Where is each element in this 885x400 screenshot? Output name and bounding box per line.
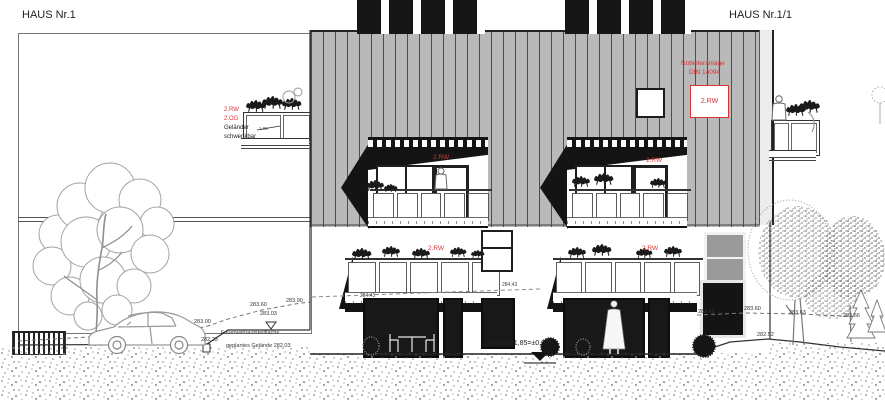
elev-283-60-r: 283.60 bbox=[744, 307, 761, 313]
label-schwenkbar: schwenkbar bbox=[224, 134, 256, 140]
label-din-14094: DIN 14094 bbox=[689, 70, 720, 77]
loggia-2og-right bbox=[567, 137, 687, 225]
label-rw-loggia-left: 2.RW bbox=[433, 155, 449, 162]
balcony-right-window-band bbox=[565, 0, 691, 34]
balcony-left-window-band bbox=[357, 0, 485, 34]
rfb-level-triangle bbox=[531, 352, 549, 361]
stair-window-upper bbox=[481, 230, 513, 272]
elev-283-63: 283.63 bbox=[789, 311, 806, 317]
label-rw-balcony-right: 2.RW bbox=[642, 246, 658, 253]
tree-trunks bbox=[786, 298, 851, 345]
smoke-vent-box: 2.RW bbox=[690, 85, 729, 118]
elev-283-90: 283.90 bbox=[286, 299, 303, 305]
label-notleiteranlage: Notleiteranlage bbox=[681, 61, 725, 68]
elevation-drawing: 1.00 2.RW bbox=[0, 0, 885, 400]
elev-282-23: 282.23 bbox=[201, 338, 218, 344]
person-balcony-right-house bbox=[772, 96, 786, 120]
elev-284-43-b: 284.43 bbox=[502, 283, 517, 288]
eg-door-left-narrow bbox=[443, 298, 463, 358]
house-nr11-balcony-slab-line bbox=[769, 160, 816, 161]
roof-window bbox=[636, 88, 665, 118]
elev-283-60: 283.60 bbox=[250, 303, 267, 309]
eg-glass-door-right bbox=[563, 298, 645, 358]
elev-284-43-a: 284.43 bbox=[360, 294, 375, 299]
elev-283-65: 283.65 bbox=[698, 310, 715, 316]
house-nr11-balcony-slab bbox=[769, 150, 816, 158]
label-rw-loggia-right: 2.RW bbox=[646, 158, 662, 165]
label-og-house: 2.OG bbox=[224, 116, 238, 122]
railing-dimension: 1.00 bbox=[259, 126, 268, 131]
eg-door-right-narrow bbox=[648, 298, 670, 358]
right-window-upper bbox=[704, 232, 746, 284]
label-rw-balcony-left: 2.RW bbox=[428, 246, 444, 253]
grade-marker-post bbox=[203, 344, 210, 352]
house-nr1-floor-line-2 bbox=[18, 221, 310, 222]
railing-panel bbox=[791, 123, 817, 153]
elev-283-03: 283.03 bbox=[260, 312, 277, 318]
title-haus-nr1-1: HAUS Nr.1/1 bbox=[729, 9, 792, 21]
conifer-icon bbox=[868, 300, 885, 332]
label-feuerwehr: Feuerwehraufstellfläche bbox=[221, 331, 279, 337]
dentil-strip bbox=[567, 137, 687, 149]
house-nr1-outline bbox=[18, 33, 312, 334]
elev-282-52: 282.52 bbox=[757, 333, 774, 339]
house-nr1-balcony-slab-line bbox=[241, 148, 309, 149]
label-gelaender: Geländer bbox=[224, 125, 249, 131]
eg-glass-door-left bbox=[363, 298, 439, 358]
elev-283-00: 283.00 bbox=[194, 320, 211, 326]
title-haus-nr1: HAUS Nr.1 bbox=[22, 9, 76, 21]
label-geplantes-gelaende: geplantes Gelände 282.03 bbox=[226, 344, 291, 350]
fence bbox=[12, 331, 66, 355]
smoke-vent-label: 2.RW bbox=[701, 98, 718, 105]
edge-shrub-sketch bbox=[872, 87, 885, 124]
house-nr1-floor-line bbox=[18, 217, 310, 218]
elev-283-66: 283.66 bbox=[843, 314, 860, 320]
label-rw-house: 2.RW bbox=[224, 107, 239, 113]
railing-panel bbox=[774, 123, 789, 153]
label-rfb: RFB 281,85=±0,00 bbox=[490, 340, 549, 347]
loggia-2og-left bbox=[368, 137, 488, 225]
dentil-strip bbox=[368, 137, 488, 149]
